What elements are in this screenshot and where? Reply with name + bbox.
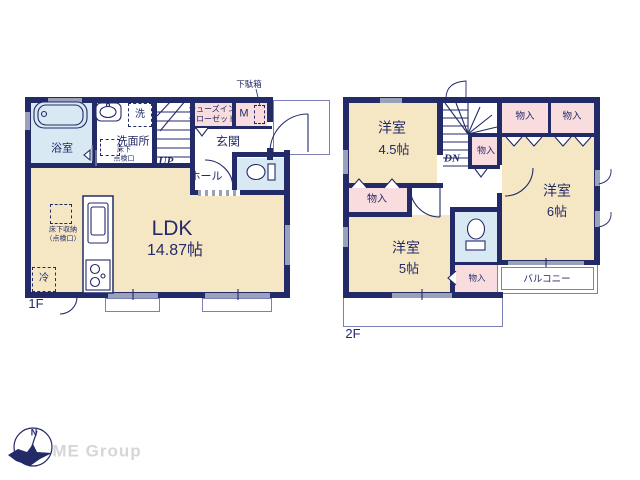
- label-compass-north: N: [31, 428, 38, 439]
- label-closet-top-left: 物入: [515, 111, 534, 123]
- wall-segment: [232, 152, 290, 157]
- label-stairs-down: DN: [444, 152, 460, 165]
- window: [380, 98, 402, 103]
- label-closet-bottom: 物入: [468, 273, 485, 283]
- wall-segment: [468, 133, 500, 137]
- awning-window: [446, 81, 466, 97]
- window: [392, 293, 452, 298]
- wall-segment: [437, 97, 443, 155]
- room5-door: [410, 187, 440, 217]
- company-logo: ME Group: [52, 442, 141, 463]
- window: [595, 211, 600, 227]
- label-closet-stair: 物入: [477, 146, 495, 157]
- label-room-a-size: 4.5帖: [378, 142, 409, 158]
- label-floor2: 2F: [345, 326, 360, 342]
- wall-segment: [343, 97, 349, 298]
- label-room-a: 洋室: [378, 119, 406, 136]
- room-ldk-right: [190, 195, 284, 292]
- wall-segment: [284, 150, 290, 298]
- wall-segment: [92, 97, 97, 165]
- window-bay: [105, 298, 160, 312]
- wall-segment: [343, 212, 412, 217]
- label-bath: 浴室: [51, 142, 73, 155]
- closet-door-mark: [196, 128, 208, 136]
- wall-segment: [343, 183, 443, 188]
- stairs-up: [157, 100, 190, 157]
- label-entrance: 玄関: [216, 135, 240, 150]
- washbasin-icon: [96, 103, 121, 121]
- window: [25, 112, 30, 130]
- label-closet-left: 物入: [367, 194, 387, 206]
- casement-windows: [599, 169, 611, 227]
- wall-segment: [232, 152, 237, 195]
- window: [48, 98, 82, 103]
- wall-segment: [548, 102, 551, 133]
- wall-segment: [468, 133, 472, 169]
- back-door-arc: [60, 297, 77, 314]
- wall-segment: [152, 97, 157, 168]
- window: [343, 150, 348, 174]
- window: [285, 225, 290, 265]
- floor-plan-canvas: 浴室 洗面所 洗 床下 点検口 シューズイン クローゼット M 下駄箱 玄関 ホ…: [0, 0, 640, 480]
- shoe-cabinet-dash: [254, 105, 265, 124]
- label-floor1: 1F: [28, 296, 43, 312]
- entrance-porch: [273, 100, 330, 155]
- label-refrigerator: 冷: [39, 273, 49, 285]
- wall-segment: [190, 126, 272, 129]
- wall-segment: [497, 97, 502, 165]
- underfloor-storage-hatch: [50, 204, 72, 224]
- window: [343, 227, 348, 247]
- wall-segment: [267, 97, 273, 122]
- label-underfloor-inspection: 床下 点検口: [114, 146, 135, 163]
- room-toilet-1f: [237, 158, 284, 192]
- label-room-c-size: 5帖: [399, 261, 419, 277]
- label-balcony: バルコニー: [523, 274, 570, 286]
- label-room-b: 洋室: [543, 182, 571, 199]
- label-washer: 洗: [135, 109, 145, 121]
- wall-segment: [497, 193, 502, 265]
- window: [595, 170, 600, 186]
- lower-floor-outline: [343, 297, 503, 327]
- wall-segment: [450, 207, 497, 212]
- wall-segment: [450, 212, 455, 292]
- label-closet-top-right: 物入: [562, 111, 581, 123]
- label-underfloor-storage: 床下収納 （点検口）: [46, 226, 81, 243]
- wall-segment: [453, 262, 497, 265]
- label-hall: ホール: [190, 170, 223, 183]
- label-room-b-size: 6帖: [547, 204, 567, 220]
- label-meter-box: M: [239, 107, 248, 120]
- label-shoe-cabinet: 下駄箱: [236, 79, 262, 89]
- window-bay: [202, 298, 272, 312]
- room-toilet-2f: [455, 212, 497, 262]
- label-ldk: LDK: [152, 216, 193, 242]
- label-shoes-in-closet: シューズイン クローゼット: [188, 104, 236, 124]
- sliding-door: [198, 190, 240, 196]
- label-room-c: 洋室: [392, 239, 420, 256]
- label-ldk-size: 14.87帖: [147, 241, 203, 261]
- label-stairs-up: UP: [159, 155, 174, 168]
- wall-segment: [502, 133, 600, 137]
- wall-segment: [468, 165, 500, 169]
- window: [508, 261, 584, 265]
